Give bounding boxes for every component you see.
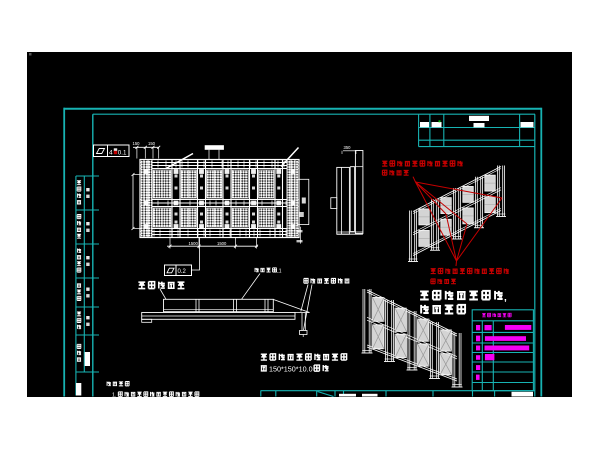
svg-text:350: 350: [344, 145, 352, 150]
svg-text:150: 150: [133, 141, 141, 146]
svg-text:0.2: 0.2: [178, 269, 187, 275]
svg-text:1500: 1500: [217, 241, 227, 246]
svg-text:L1: L1: [276, 268, 282, 274]
svg-text:,: ,: [504, 293, 507, 304]
svg-text:1.: 1.: [112, 392, 117, 396]
svg-text:1500: 1500: [189, 241, 199, 246]
svg-text:0.1: 0.1: [118, 149, 127, 156]
svg-text:4: 4: [109, 149, 113, 156]
svg-text::: :: [126, 383, 127, 389]
svg-text:150: 150: [148, 141, 156, 146]
svg-text:150*150*10.0: 150*150*10.0: [269, 364, 313, 373]
